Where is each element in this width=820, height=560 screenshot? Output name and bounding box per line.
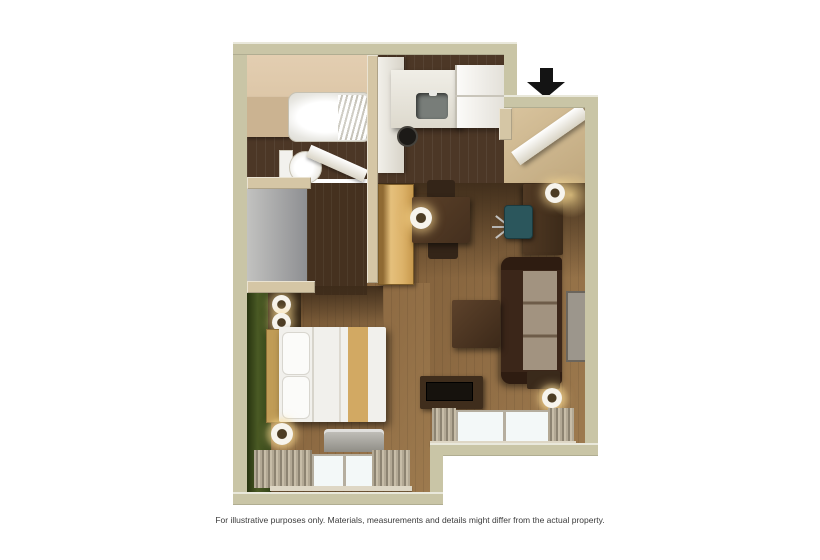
bedroom-curtain-right xyxy=(372,450,410,488)
bed-crease-1 xyxy=(312,327,314,422)
nightstand-lamp-1 xyxy=(272,295,291,314)
disclaimer-text: For illustrative purposes only. Material… xyxy=(0,515,820,525)
outer-wall-living-bottom xyxy=(430,443,598,456)
bathroom-shelf xyxy=(247,97,291,137)
outer-wall-right xyxy=(585,95,598,456)
outer-wall-bedroom-bottom xyxy=(233,492,443,505)
bed-crease-2 xyxy=(339,327,341,422)
bedroom-window-sill xyxy=(270,486,412,491)
sofa-cushions xyxy=(523,271,557,370)
desk-lamp xyxy=(545,183,565,203)
floorplan-image: For illustrative purposes only. Material… xyxy=(0,0,820,560)
wall-bath-kitchen xyxy=(367,55,378,283)
refrigerator-door-split xyxy=(455,95,505,97)
end-table xyxy=(527,371,560,389)
wardrobe-cabinet xyxy=(378,184,414,285)
living-floor-lamp xyxy=(542,388,562,408)
bedroom-curtain-left xyxy=(254,450,312,488)
wall-entry-stub xyxy=(499,108,512,140)
living-curtain-left xyxy=(432,408,456,442)
bed-pillow-2 xyxy=(282,376,310,419)
wall-dressing-south xyxy=(247,281,315,293)
cooktop-burner xyxy=(397,126,418,147)
office-chair-seat xyxy=(504,205,533,239)
kitchen-sink xyxy=(416,93,448,119)
shower-curtain xyxy=(338,95,370,140)
vanity-counter xyxy=(247,183,309,281)
living-curtain-right xyxy=(548,408,574,442)
living-window xyxy=(432,408,574,446)
coffee-table xyxy=(452,300,500,348)
outer-wall-left xyxy=(233,42,247,505)
living-window-panes xyxy=(456,410,552,445)
wall-art xyxy=(566,291,587,362)
outer-wall-entry-top xyxy=(504,95,598,108)
entrance-arrow-stem xyxy=(540,68,553,83)
bed-pillow-1 xyxy=(282,332,310,375)
dining-table-lamp xyxy=(410,207,432,229)
tv xyxy=(426,382,473,401)
sink-faucet xyxy=(429,90,437,96)
sofa-armrest-top xyxy=(501,257,562,270)
outer-wall-top xyxy=(233,42,517,55)
bed-accent-stripe xyxy=(348,327,368,422)
bedroom-floor-lamp xyxy=(271,423,293,445)
sofa xyxy=(501,257,562,384)
closet-floor xyxy=(307,183,367,281)
wall-bath-south xyxy=(247,177,311,189)
bedroom-window xyxy=(254,448,410,492)
